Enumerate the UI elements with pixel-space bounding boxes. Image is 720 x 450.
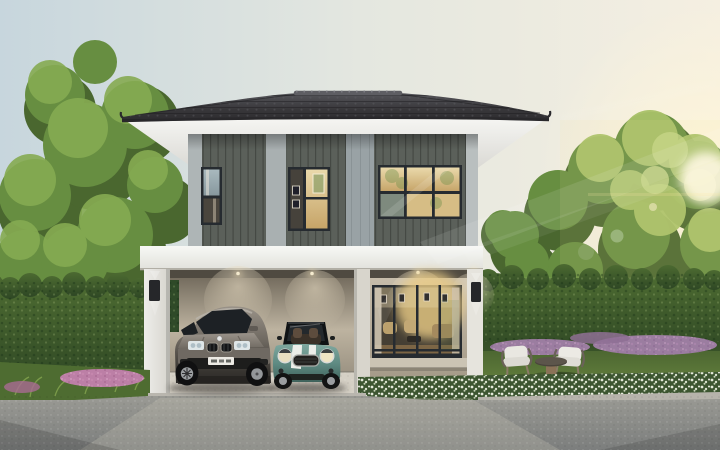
mini-lower-intake [287,374,325,380]
mini-mirror [330,336,335,340]
suv-license-plate [208,357,234,365]
scene-canvas [0,0,720,450]
upper-window-middle [288,167,330,231]
porch-sill [366,358,470,368]
upper-window-right [378,165,462,219]
mini-grille [293,355,319,366]
upper-floor [188,134,478,246]
suv-mirror [249,326,258,331]
upper-window-left [201,167,222,225]
driveway [0,393,720,450]
suv-badge [217,336,222,341]
house-render-image: Daytime exterior rendering of a modern t… [0,0,720,450]
mini-mirror [277,336,282,340]
